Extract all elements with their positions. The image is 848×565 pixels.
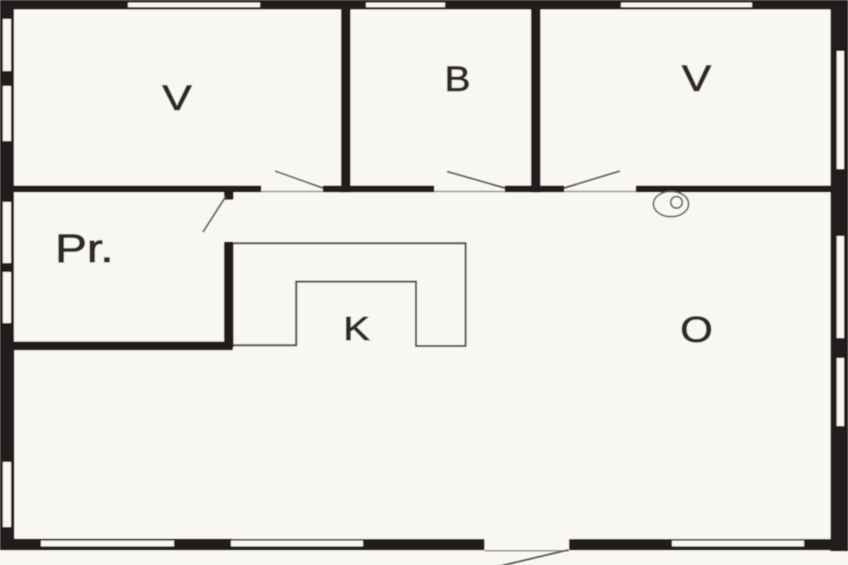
svg-text:B: B [445, 60, 471, 99]
svg-text:K: K [343, 310, 370, 347]
svg-text:V: V [682, 58, 712, 99]
svg-text:V: V [162, 79, 192, 118]
svg-text:Pr.: Pr. [55, 227, 114, 271]
svg-text:O: O [680, 309, 713, 350]
